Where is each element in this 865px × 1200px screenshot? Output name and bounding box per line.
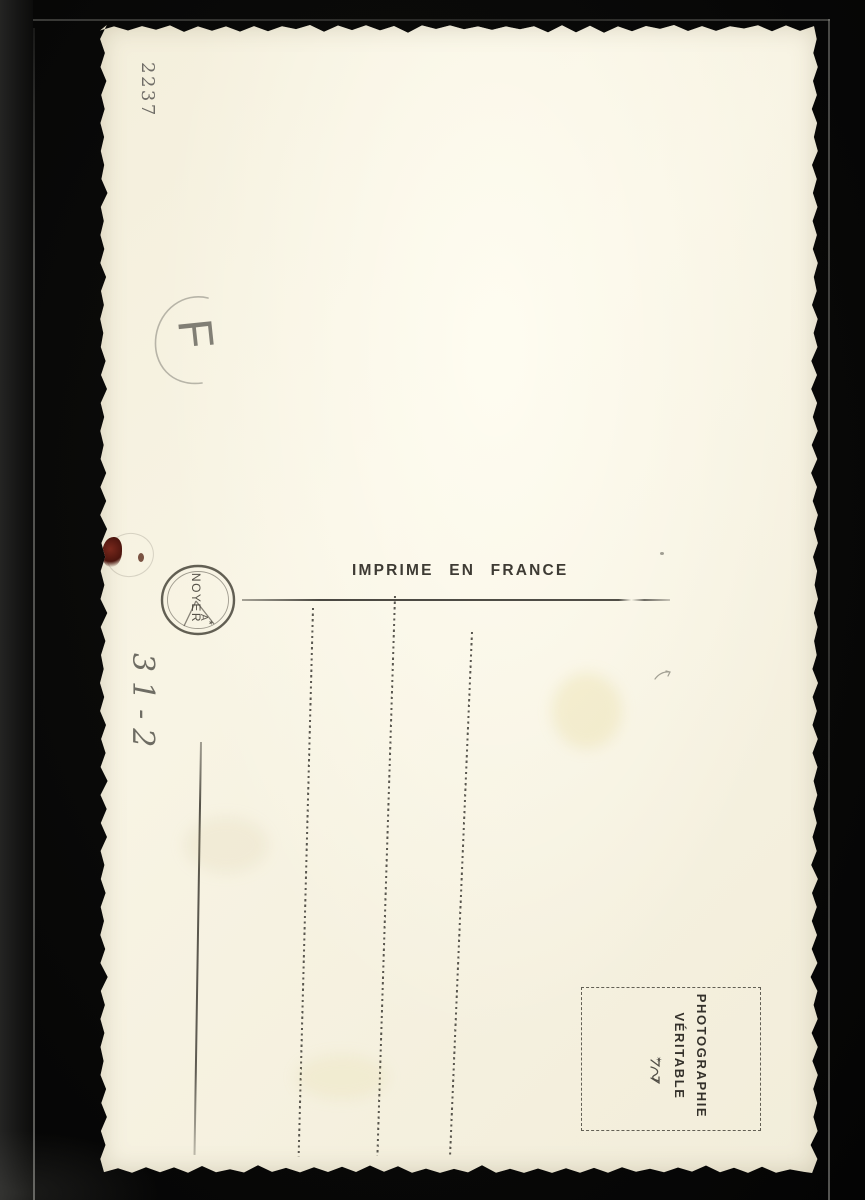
mount-strip-left bbox=[0, 0, 33, 1200]
publisher-round-stamp: NOYER A ★ bbox=[159, 561, 237, 639]
mount-edge-top-line bbox=[33, 19, 830, 21]
pencil-tick-mark bbox=[653, 668, 673, 682]
age-spot bbox=[296, 1055, 388, 1099]
pencil-circled-letter-mark: F bbox=[146, 291, 246, 403]
message-rule-line bbox=[194, 742, 202, 1155]
stamp-box-line2: VÉRITABLE bbox=[672, 981, 687, 1131]
photo-backdrop: 2237 F NOYER A ★ IMPRIME EN FRANCE 31-2 bbox=[0, 0, 865, 1200]
stamp-box-emblem: ✶ bbox=[647, 981, 663, 1131]
divider-line bbox=[242, 599, 670, 601]
imprint-text: IMPRIME EN FRANCE bbox=[352, 562, 568, 580]
age-spot bbox=[184, 817, 268, 873]
stamp-box: PHOTOGRAPHIE VÉRITABLE ✶ bbox=[581, 987, 761, 1131]
postcard-back: 2237 F NOYER A ★ IMPRIME EN FRANCE 31-2 bbox=[100, 25, 818, 1173]
stamp-box-line1: PHOTOGRAPHIE bbox=[694, 981, 709, 1131]
address-dotted-line bbox=[449, 632, 473, 1156]
trademark-squiggle-icon bbox=[647, 1056, 663, 1086]
card-serial-number: 2237 bbox=[137, 62, 158, 118]
pencil-note: 31-2 bbox=[125, 653, 160, 756]
ink-speck bbox=[660, 552, 664, 555]
age-spot bbox=[552, 673, 622, 749]
stain-speck bbox=[138, 553, 144, 562]
mount-edge-left-line bbox=[33, 28, 35, 1200]
stamp-box-text: PHOTOGRAPHIE VÉRITABLE ✶ bbox=[647, 981, 709, 1131]
mount-edge-right-line bbox=[828, 19, 830, 1200]
publisher-star: ★ bbox=[207, 620, 214, 625]
pencil-letter: F bbox=[167, 316, 223, 351]
